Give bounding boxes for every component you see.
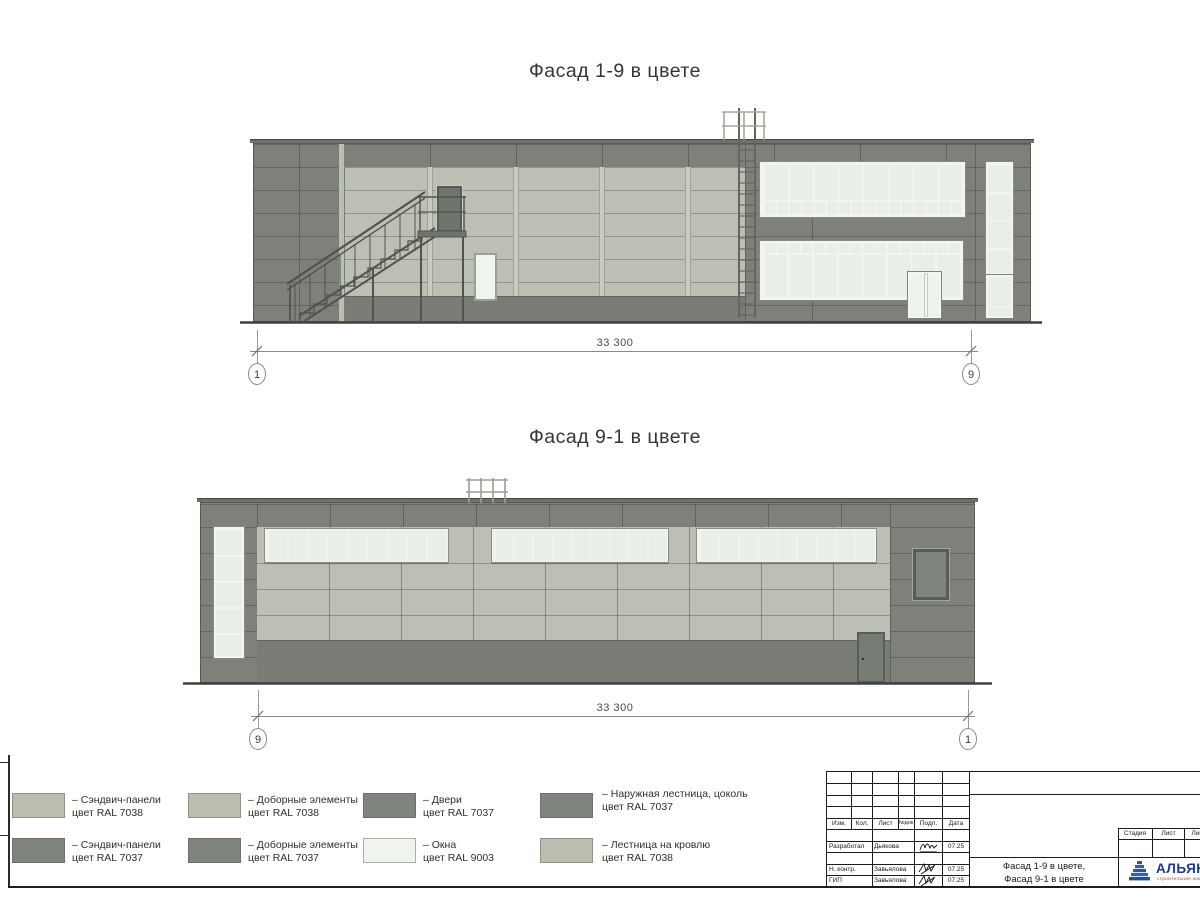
tb-sheet: Лист: [1153, 828, 1184, 839]
tb-doc-title: Фасад 1-9 в цвете, Фасад 9-1 в цвете: [970, 860, 1118, 886]
side-glass-door: [986, 275, 1013, 318]
rear-door: [857, 632, 885, 683]
legend-label: – Лестница на кровлю цвет RAL 7038: [602, 839, 710, 865]
service-door-white: [474, 253, 497, 301]
window-transom: [763, 244, 960, 255]
glass-entrance-door: [908, 272, 941, 318]
framed-wall-panel: [913, 549, 949, 600]
tb-line: [827, 795, 969, 796]
tb-line: [969, 794, 1200, 795]
panel-joint: [403, 503, 404, 527]
tb-name: Завьялова: [874, 864, 914, 875]
dimension-line: [251, 716, 975, 717]
legend-text: цвет RAL 7037: [602, 801, 748, 814]
legend-label: – Двери цвет RAL 7037: [423, 794, 494, 820]
sheet-frame-left: [8, 755, 10, 887]
dimension-value: 33 300: [545, 702, 685, 714]
tb-header-kol: Кол.: [852, 818, 872, 829]
panel-joint: [257, 615, 890, 616]
extension-line: [968, 690, 969, 728]
legend-label: – Доборные элементы цвет RAL 7038: [248, 794, 358, 820]
tb-name: Завьялова: [874, 875, 914, 886]
legend-text: – Лестница на кровлю: [602, 839, 710, 852]
ribbon-window-1: [265, 529, 448, 562]
legend-swatch: [540, 793, 593, 818]
legend-swatch: [12, 838, 65, 863]
legend-text: цвет RAL 7038: [72, 807, 161, 820]
legend-text: – Сэндвич-панели: [72, 794, 161, 807]
grid-axis-bubble: 9: [249, 728, 267, 750]
tb-doc-title-line1: Фасад 1-9 в цвете,: [970, 860, 1118, 873]
panel-joint: [622, 503, 623, 527]
door-handle: [862, 658, 864, 660]
panel-joint: [516, 144, 517, 167]
side-window-strip: [214, 527, 244, 658]
panel-joint: [257, 563, 890, 564]
tb-sheets: Листов: [1185, 828, 1200, 839]
sheet-frame-tick: [0, 762, 8, 763]
legend-label: – Окна цвет RAL 9003: [423, 839, 494, 865]
tb-role: ГИП: [829, 875, 872, 886]
tb-header-podp: Подп.: [915, 818, 942, 829]
tb-role: Разработал: [829, 841, 872, 852]
legend-label: – Доборные элементы цвет RAL 7037: [248, 839, 358, 865]
door-rail: [988, 306, 1011, 308]
plinth-band: [257, 640, 890, 683]
legend-swatch: [363, 838, 416, 863]
legend-swatch: [12, 793, 65, 818]
window-mullions: [988, 164, 1011, 273]
tb-stage: Стадия: [1118, 828, 1152, 839]
legend-text: цвет RAL 9003: [423, 852, 494, 865]
tb-line: [827, 852, 969, 853]
panel-joint: [430, 144, 431, 167]
legend-swatch: [540, 838, 593, 863]
company-logo: АЛЬЯНС строительная компания: [1119, 858, 1200, 887]
panel-joint: [841, 503, 842, 527]
window-mullions: [699, 531, 874, 560]
legend-text: – Двери: [423, 794, 494, 807]
panel-joint: [549, 503, 550, 527]
title-block: Изм. Кол. Лист №док Подп. Дата Разработа…: [826, 771, 1200, 886]
signature: [917, 838, 941, 854]
legend-text: – Доборные элементы: [248, 839, 358, 852]
logo-name: АЛЬЯНС: [1156, 861, 1200, 876]
panel-joint: [473, 527, 474, 640]
extension-line: [257, 330, 258, 365]
panel-joint: [695, 503, 696, 527]
tb-line: [827, 783, 969, 784]
tb-doc-title-line2: Фасад 9-1 в цвете: [970, 873, 1118, 886]
dimension-value: 33 300: [545, 337, 685, 349]
drawing-sheet: Фасад 1-9 в цвете Фасад 9-1 в цвете: [0, 0, 1200, 900]
legend-text: цвет RAL 7037: [248, 852, 358, 865]
signature: [917, 874, 941, 887]
panel-joint: [688, 144, 689, 167]
panel-joint: [299, 144, 300, 322]
panel-joint: [768, 503, 769, 527]
upper-window-band: [760, 162, 965, 217]
grid-axis-bubble: 1: [248, 363, 266, 385]
stair-top-door: [437, 186, 462, 232]
logo-subtitle: строительная компания: [1157, 877, 1200, 882]
sheet-frame-tick: [0, 835, 8, 836]
legend-text: – Сэндвич-панели: [72, 839, 161, 852]
tb-header-izm: Изм.: [827, 818, 851, 829]
corner-trim-strip: [338, 144, 345, 322]
bay-trim-strip: [685, 167, 691, 296]
bay-trim-strip: [427, 167, 433, 296]
tb-line: [1118, 839, 1200, 840]
section-joint: [745, 144, 746, 322]
tb-header-ndok: №док: [897, 818, 915, 829]
tb-role: Н. контр.: [829, 864, 872, 875]
legend-label: – Сэндвич-панели цвет RAL 7038: [72, 794, 161, 820]
window-mullions: [267, 531, 446, 560]
grid-axis-bubble: 1: [959, 728, 977, 750]
legend-text: цвет RAL 7038: [602, 852, 710, 865]
door-mullion: [925, 274, 927, 316]
legend-text: цвет RAL 7037: [72, 852, 161, 865]
facade-9-1-drawing: [0, 420, 1200, 790]
dimension-line: [250, 351, 978, 352]
window-mullions: [216, 529, 242, 656]
facade-1-9-drawing: [0, 0, 1200, 420]
legend-swatch: [188, 838, 241, 863]
legend-text: – Наружная лестница, цоколь: [602, 788, 748, 801]
panel-joint: [257, 589, 890, 590]
legend-text: цвет RAL 7038: [248, 807, 358, 820]
panel-joint: [689, 527, 690, 640]
tb-name: Дьякова: [874, 841, 914, 852]
legend-swatch: [363, 793, 416, 818]
legend-text: – Окна: [423, 839, 494, 852]
extension-line: [258, 690, 259, 728]
tb-date: 07.25: [943, 841, 969, 852]
legend-label: – Наружная лестница, цоколь цвет RAL 703…: [602, 788, 748, 814]
sheet-frame-bottom: [8, 886, 1200, 888]
tb-line: [827, 829, 969, 830]
ribbon-window-2: [492, 529, 668, 562]
bay-trim-strip: [599, 167, 605, 296]
plinth-band: [345, 296, 745, 322]
logo-pyramid-icon: [1127, 861, 1153, 883]
stairwell-window-strip: [986, 162, 1013, 275]
grid-axis-bubble: 9: [962, 363, 980, 385]
extension-line: [971, 330, 972, 365]
legend-swatch: [188, 793, 241, 818]
panel-joint: [602, 144, 603, 167]
legend-text: цвет RAL 7037: [423, 807, 494, 820]
panel-joint: [330, 503, 331, 527]
legend-label: – Сэндвич-панели цвет RAL 7037: [72, 839, 161, 865]
panel-joint: [476, 503, 477, 527]
tb-header-list: Лист: [873, 818, 898, 829]
tb-date: 07.25: [943, 875, 969, 886]
bay-trim-strip: [513, 167, 519, 296]
ribbon-window-3: [697, 529, 876, 562]
tb-date: 07.25: [943, 864, 969, 875]
section-joint: [890, 503, 891, 683]
tb-line: [827, 806, 969, 807]
tb-header-data: Дата: [943, 818, 969, 829]
legend: – Сэндвич-панели цвет RAL 7038 – Сэндвич…: [0, 780, 820, 880]
window-mullions: [494, 531, 666, 560]
window-transom: [763, 200, 962, 214]
legend-text: – Доборные элементы: [248, 794, 358, 807]
section-joint: [975, 144, 976, 322]
